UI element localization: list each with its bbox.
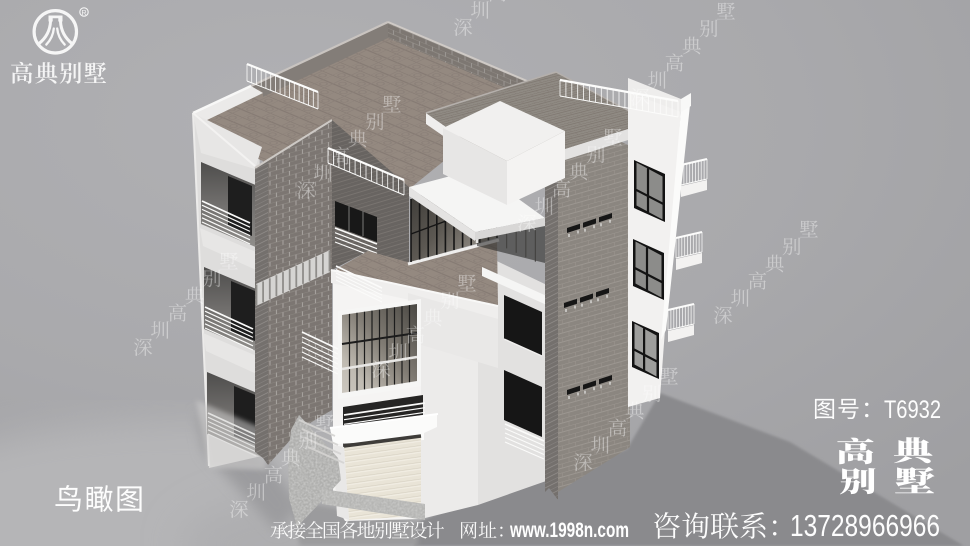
svg-text:13728966966: 13728966966 (790, 508, 940, 543)
svg-text:T6932: T6932 (884, 396, 941, 424)
svg-text:www.1998n.com: www.1998n.com (509, 519, 629, 542)
svg-text:R: R (81, 10, 86, 17)
